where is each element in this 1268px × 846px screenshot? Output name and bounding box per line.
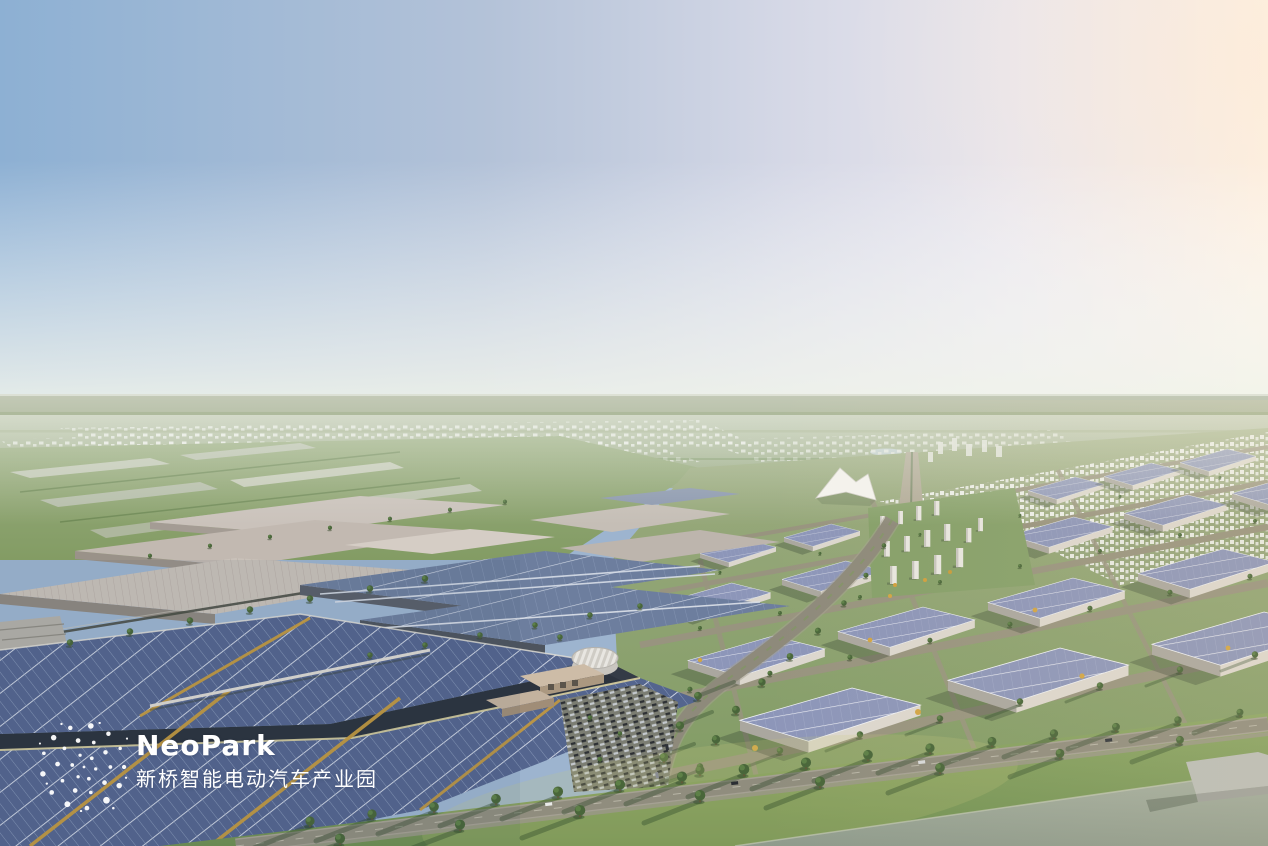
sky — [0, 0, 1268, 405]
neopark-dot-starburst-icon — [38, 722, 128, 812]
aerial-render: NeoPark 新桥智能电动汽车产业园 — [0, 0, 1268, 846]
neopark-logo-text: NeoPark 新桥智能电动汽车产业园 — [136, 732, 378, 789]
neopark-wordmark: NeoPark — [136, 732, 378, 760]
neopark-tagline-chinese: 新桥智能电动汽车产业园 — [136, 769, 378, 789]
neopark-logo: NeoPark 新桥智能电动汽车产业园 — [38, 720, 378, 812]
